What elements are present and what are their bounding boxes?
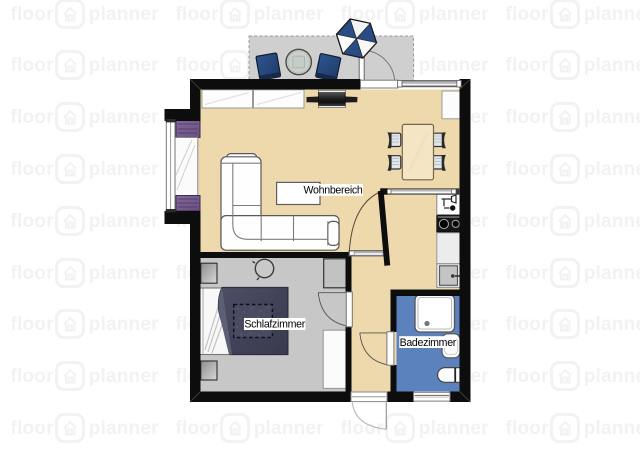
svg-text:Badezimmer: Badezimmer bbox=[400, 337, 457, 349]
svg-text:Schlafzimmer: Schlafzimmer bbox=[244, 319, 305, 331]
svg-text:Wohnbereich: Wohnbereich bbox=[304, 184, 363, 196]
